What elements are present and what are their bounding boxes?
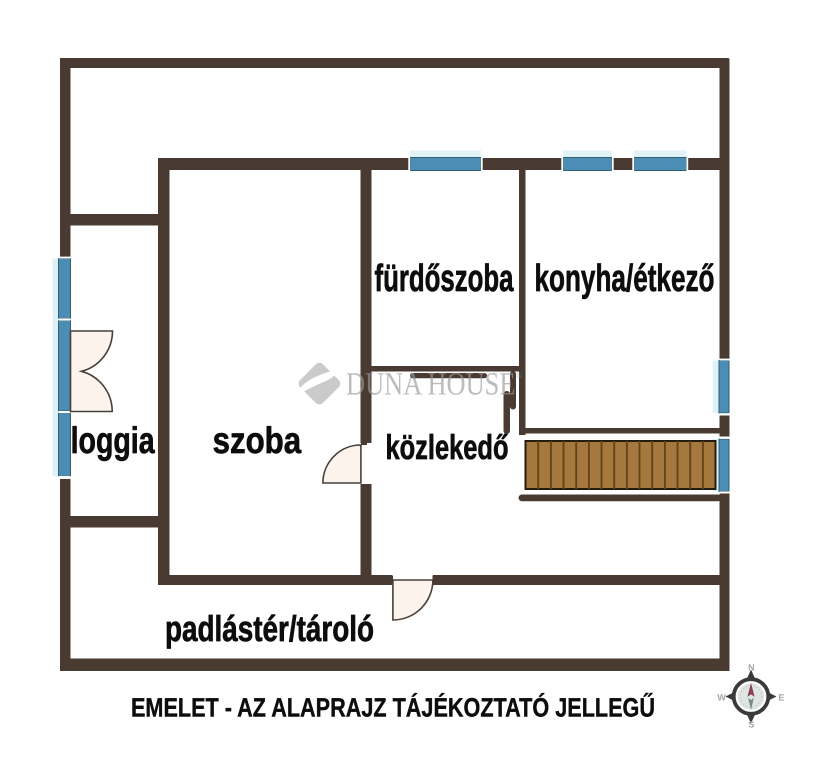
svg-text:közlekedő: közlekedő: [386, 429, 509, 467]
svg-text:konyha/étkező: konyha/étkező: [535, 258, 715, 300]
svg-text:W: W: [717, 692, 726, 702]
svg-text:N: N: [748, 663, 755, 673]
svg-text:E: E: [778, 692, 784, 702]
svg-text:EMELET - AZ ALAPRAJZ TÁJÉKOZTA: EMELET - AZ ALAPRAJZ TÁJÉKOZTATÓ JELLEGŰ: [131, 693, 655, 723]
svg-text:padlástér/tároló: padlástér/tároló: [165, 608, 374, 649]
svg-text:S: S: [748, 720, 754, 730]
svg-text:loggia: loggia: [71, 420, 155, 461]
svg-text:fürdőszoba: fürdőszoba: [375, 258, 515, 300]
svg-text:DUNA HOUSE: DUNA HOUSE: [346, 366, 516, 402]
svg-text:®: ®: [516, 370, 523, 380]
svg-text:szoba: szoba: [213, 420, 302, 461]
